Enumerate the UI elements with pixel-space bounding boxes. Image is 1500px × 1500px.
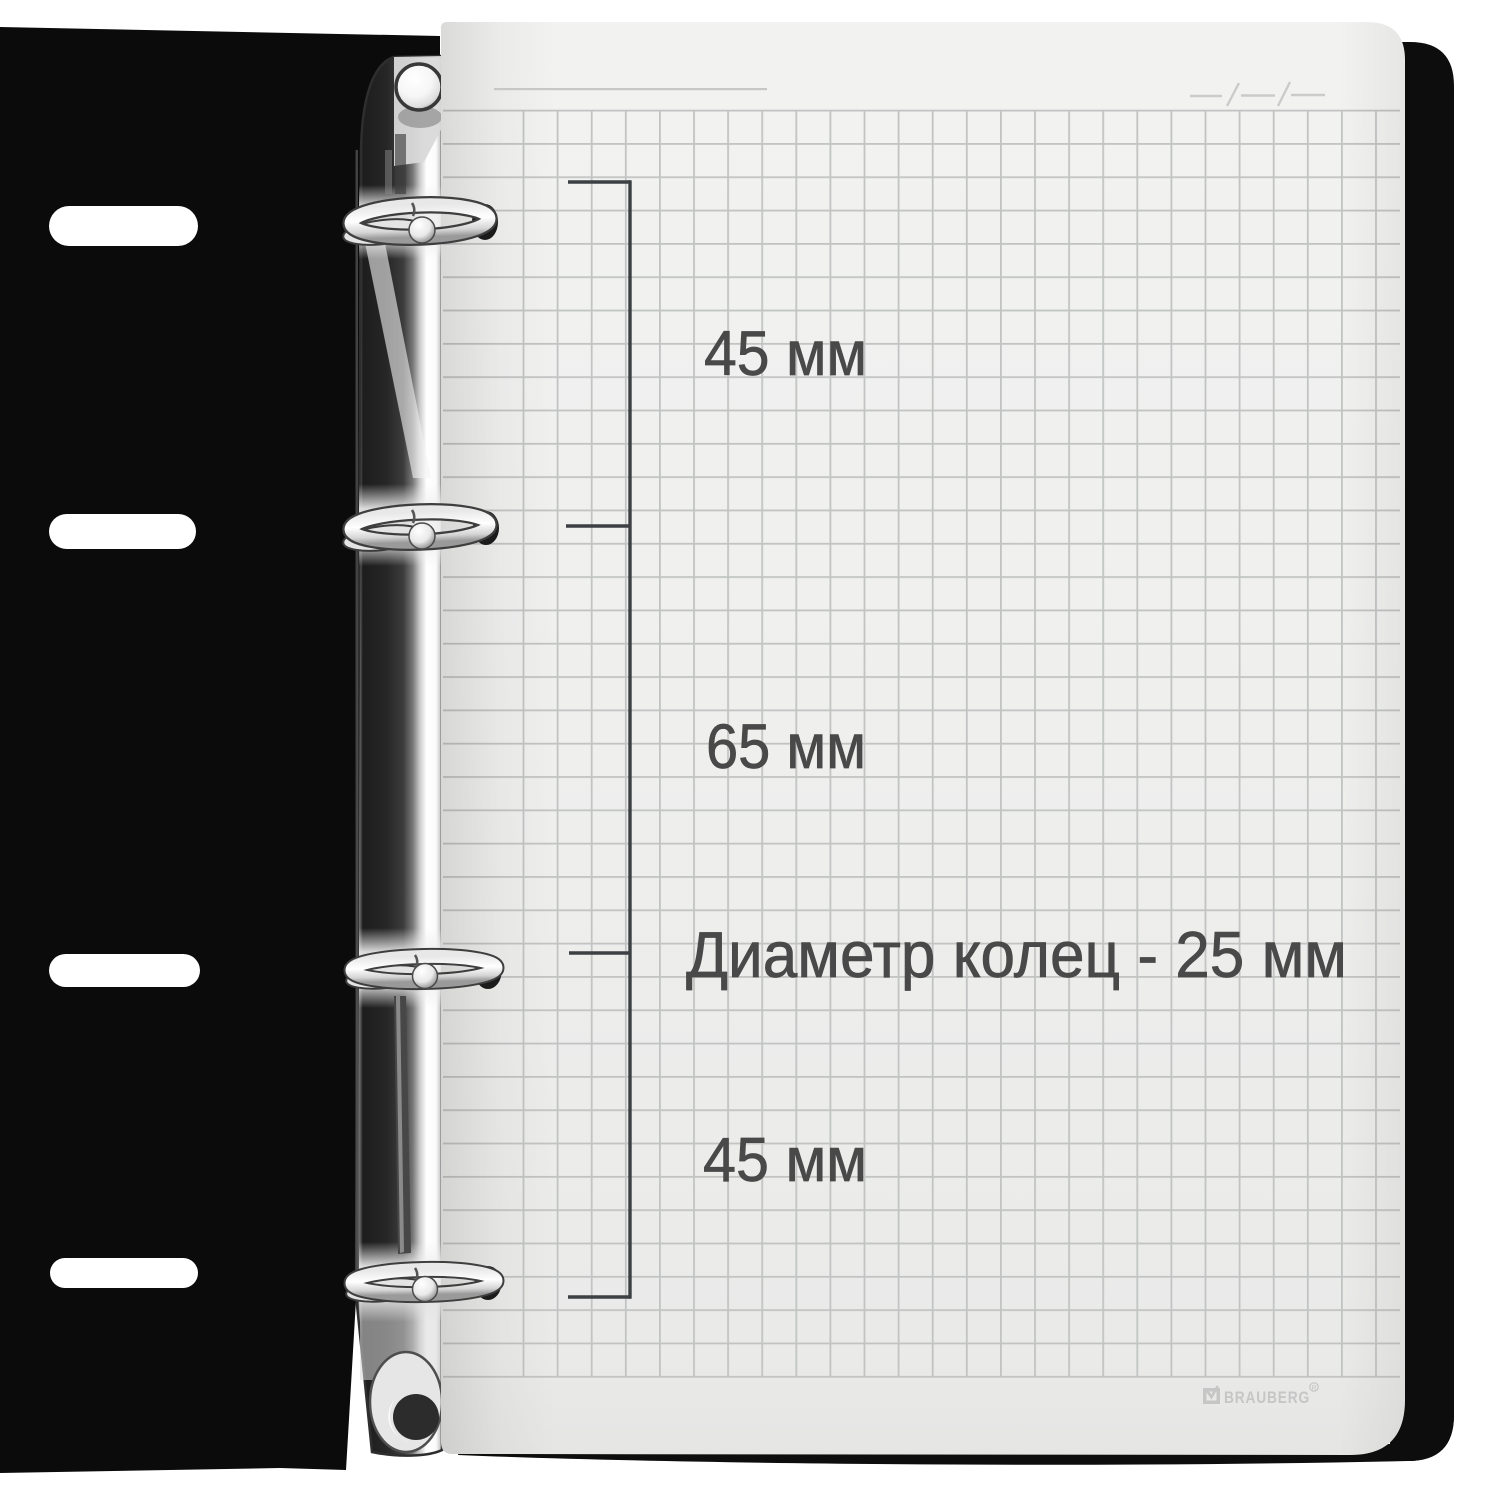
- svg-text:45 мм: 45 мм: [703, 1126, 867, 1195]
- svg-text:65 мм: 65 мм: [706, 712, 866, 782]
- svg-text:Диаметр колец - 25 мм: Диаметр колец - 25 мм: [686, 918, 1347, 991]
- svg-text:BRAUBERG: BRAUBERG: [1224, 1388, 1310, 1407]
- svg-text:45 мм: 45 мм: [704, 319, 867, 389]
- svg-text:R: R: [1312, 1385, 1317, 1392]
